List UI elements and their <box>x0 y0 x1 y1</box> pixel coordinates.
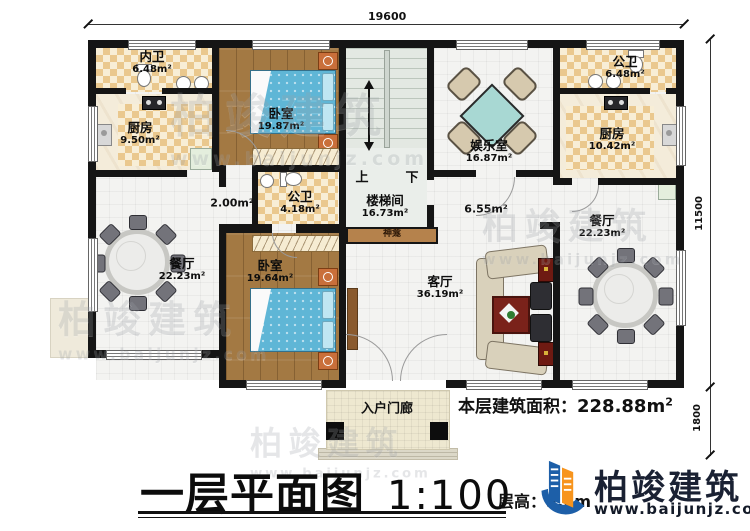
wall <box>427 40 434 180</box>
kitchen-sink-icon <box>662 124 677 146</box>
room-name: 内卫 <box>132 50 171 64</box>
title-underline-thin <box>138 517 506 518</box>
room-name: 公卫 <box>280 190 319 204</box>
wall <box>88 170 187 177</box>
chair <box>617 329 635 344</box>
chair <box>579 288 594 306</box>
bed-sheet <box>251 289 271 351</box>
nightstand <box>318 52 338 70</box>
room-area: 16.73m² <box>362 208 408 220</box>
room-label-inner-bath: 内卫 6.48m² <box>132 50 171 76</box>
dimension-line-right <box>710 40 711 456</box>
room-area: 9.50m² <box>120 135 159 147</box>
room-area: 22.23m² <box>579 228 625 240</box>
room-label-bedroom-bottom: 卧室 19.64m² <box>247 259 293 285</box>
room-area: 6.48m² <box>132 64 171 76</box>
floor-plan-canvas: 神龛 <box>0 0 750 531</box>
pillow <box>322 73 334 101</box>
stair-arrow-up <box>364 80 374 89</box>
wall <box>560 178 572 185</box>
room-label-dining-right: 餐厅 22.23m² <box>579 214 625 240</box>
stair-rail <box>384 50 390 148</box>
room-label-kitchen-left: 厨房 9.50m² <box>120 121 159 147</box>
stove-icon <box>142 96 166 110</box>
porch-column-right <box>430 422 448 440</box>
window <box>676 106 686 166</box>
room-name: 餐厅 <box>579 214 625 228</box>
room-name: 公卫 <box>605 55 644 69</box>
hall-area-label: 6.55m² <box>464 203 507 216</box>
wall <box>540 222 560 229</box>
window <box>456 40 528 50</box>
room-area: 36.19m² <box>417 289 463 301</box>
armchair <box>530 282 552 310</box>
window <box>676 250 686 326</box>
title-underline <box>138 511 506 514</box>
wall <box>219 165 226 187</box>
window <box>466 380 542 390</box>
wall <box>553 40 560 185</box>
toilet-icon <box>285 172 302 186</box>
pillow <box>322 103 334 131</box>
appliance-icon <box>658 184 676 200</box>
dining-table-top <box>116 241 146 271</box>
chair <box>129 215 147 230</box>
wall <box>258 165 346 172</box>
dim-right-value: 11500 <box>694 196 705 231</box>
room-name: 客厅 <box>417 275 463 289</box>
window <box>88 238 98 312</box>
stair-down-label: 下 <box>405 167 418 186</box>
window <box>586 40 660 50</box>
shrine-shelf: 神龛 <box>346 227 438 244</box>
corridor-area-label: 2.00m² <box>210 197 253 210</box>
armchair <box>530 314 552 342</box>
brand-website: www.baijunjz.com <box>594 500 750 518</box>
wall <box>219 224 272 233</box>
room-area: 19.87m² <box>258 121 304 133</box>
stair-arrow-down <box>364 142 374 151</box>
wall <box>88 88 126 94</box>
floor-area-label: 本层建筑面积： <box>458 397 577 417</box>
room-area: 6.48m² <box>605 69 644 81</box>
nightstand <box>318 352 338 370</box>
room-area: 16.87m² <box>466 153 512 165</box>
sink-icon <box>260 174 274 188</box>
floor-area-value: 228.88m <box>577 396 665 417</box>
wall <box>162 88 212 94</box>
window <box>88 106 98 162</box>
side-step <box>50 298 92 358</box>
stair-arrow <box>368 88 370 142</box>
plant-icon <box>507 311 515 319</box>
window <box>106 350 202 360</box>
porch-column-left <box>326 422 344 440</box>
kitchen-sink-icon <box>97 124 112 146</box>
wall <box>339 40 346 388</box>
coffee-table <box>492 296 530 334</box>
stair-up-label: 上 <box>355 167 368 186</box>
floor-area-sup: 2 <box>665 396 673 409</box>
room-name: 卧室 <box>247 259 293 273</box>
room-label-kitchen-right: 厨房 10.42m² <box>589 127 635 153</box>
dim-right-lower-value: 1800 <box>692 404 703 432</box>
wall <box>598 178 676 185</box>
shrine-label: 神龛 <box>383 229 401 239</box>
room-label-public-bath-mid: 公卫 4.18m² <box>280 190 319 216</box>
brand-logo-icon <box>534 454 590 522</box>
wall <box>434 170 476 177</box>
room-name: 娱乐室 <box>466 139 512 153</box>
wall <box>296 224 346 233</box>
appliance-icon <box>190 148 212 170</box>
pillow <box>322 291 334 319</box>
room-label-entertainment: 娱乐室 16.87m² <box>466 139 512 165</box>
pillow <box>322 321 334 349</box>
room-label-bedroom-top: 卧室 19.87m² <box>258 107 304 133</box>
room-name: 楼梯间 <box>362 194 408 208</box>
room-area: 10.42m² <box>589 141 635 153</box>
nightstand <box>318 268 338 286</box>
stove-icon <box>604 96 628 110</box>
room-name: 厨房 <box>589 127 635 141</box>
wall <box>560 88 650 94</box>
room-name: 厨房 <box>120 121 159 135</box>
dim-top-value: 19600 <box>364 10 410 23</box>
chair <box>659 288 674 306</box>
room-area: 4.18m² <box>280 204 319 216</box>
window <box>252 40 330 50</box>
dimension-line-top <box>88 24 684 25</box>
room-name: 卧室 <box>258 107 304 121</box>
room-area: 19.64m² <box>247 273 293 285</box>
room-label-stairwell: 楼梯间 16.73m² <box>362 194 408 220</box>
window <box>572 380 648 390</box>
floor-area-summary: 本层建筑面积：228.88m2 <box>458 392 673 417</box>
sink-icon <box>588 74 603 89</box>
room-name: 餐厅 <box>159 257 205 271</box>
wall <box>553 222 560 388</box>
room-label-dining-left: 餐厅 22.23m² <box>159 257 205 283</box>
chair <box>617 248 635 263</box>
porch-label: 入户门廊 <box>361 398 413 417</box>
wall <box>676 40 684 388</box>
window <box>246 380 322 390</box>
chair <box>129 296 147 311</box>
room-area: 22.23m² <box>159 271 205 283</box>
room-label-public-bath-top: 公卫 6.48m² <box>605 55 644 81</box>
wall <box>516 170 553 177</box>
wall <box>666 88 676 94</box>
wall <box>219 228 226 388</box>
dining-table-top <box>604 274 634 304</box>
room-label-living: 客厅 36.19m² <box>417 275 463 301</box>
wall <box>212 40 219 172</box>
